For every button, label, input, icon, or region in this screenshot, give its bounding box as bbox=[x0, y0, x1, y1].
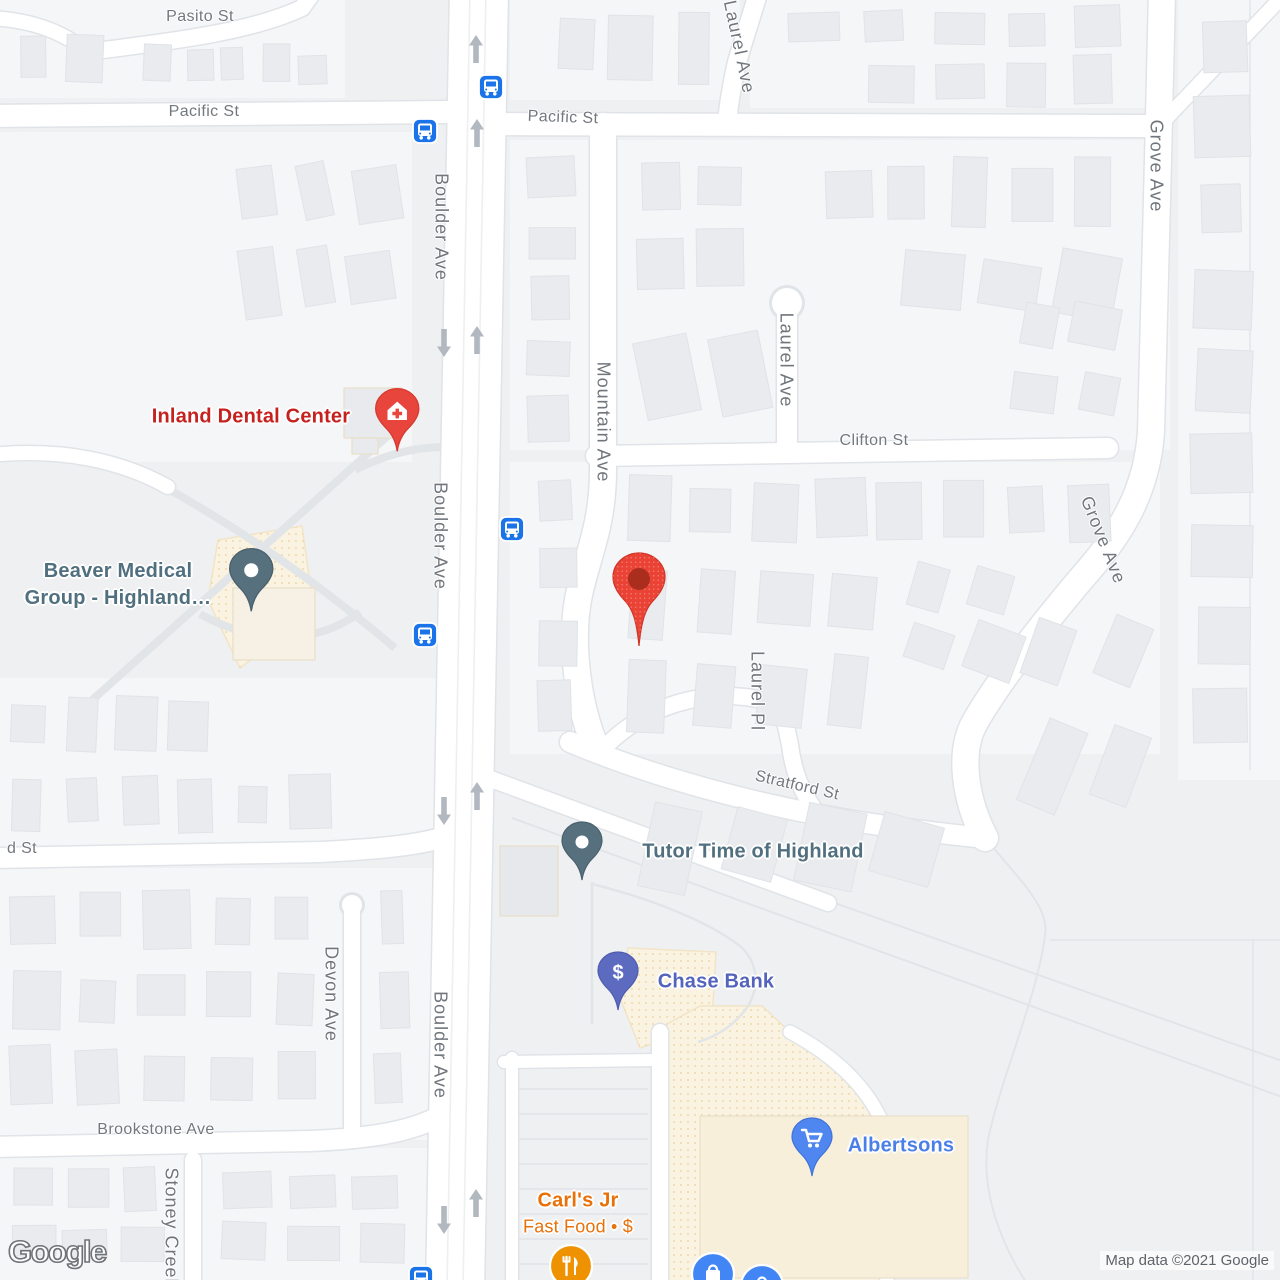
poi-label-carls-jr[interactable]: Carl's JrFast Food • $ bbox=[523, 1187, 633, 1238]
poi-label-beaver-medical[interactable]: Beaver Medical Group - Highland… bbox=[25, 558, 212, 612]
poi-pin-carls-jr[interactable] bbox=[547, 1242, 595, 1280]
destination-pin[interactable] bbox=[609, 549, 669, 654]
poi-label-tutor-time[interactable]: Tutor Time of Highland bbox=[642, 839, 863, 866]
google-logo[interactable]: Google bbox=[8, 1234, 106, 1270]
poi-label-albertsons[interactable]: Albertsons bbox=[848, 1133, 954, 1160]
bus-stop-icon[interactable] bbox=[407, 1264, 435, 1280]
poi-label-chase-bank[interactable]: Chase Bank bbox=[658, 969, 775, 996]
bus-stop-icon[interactable] bbox=[411, 117, 439, 150]
poi-pin-beaver-medical[interactable] bbox=[221, 540, 281, 623]
poi-pin-tutor-time[interactable] bbox=[554, 814, 610, 891]
poi-sublabel-carls-jr: Fast Food • $ bbox=[523, 1214, 633, 1238]
svg-text:$: $ bbox=[612, 962, 623, 984]
bus-stop-icon[interactable] bbox=[411, 621, 439, 654]
poi-pin-albertsons[interactable] bbox=[784, 1110, 840, 1187]
bus-stop-icon[interactable] bbox=[477, 73, 505, 106]
poi-pin-chase-bank[interactable]: $ bbox=[590, 944, 646, 1021]
poi-label-inland-dental[interactable]: Inland Dental Center bbox=[152, 404, 350, 431]
store-badge-2-bag-icon[interactable] bbox=[738, 1262, 786, 1280]
bus-stop-icon[interactable] bbox=[498, 515, 526, 548]
poi-pin-inland-dental[interactable] bbox=[367, 380, 427, 463]
map-canvas[interactable]: Pasito StPacific StPacific StBoulder Ave… bbox=[0, 0, 1280, 1280]
store-badge-1-bag-icon[interactable] bbox=[689, 1250, 737, 1280]
map-copyright: Map data ©2021 Google bbox=[1100, 1251, 1274, 1270]
